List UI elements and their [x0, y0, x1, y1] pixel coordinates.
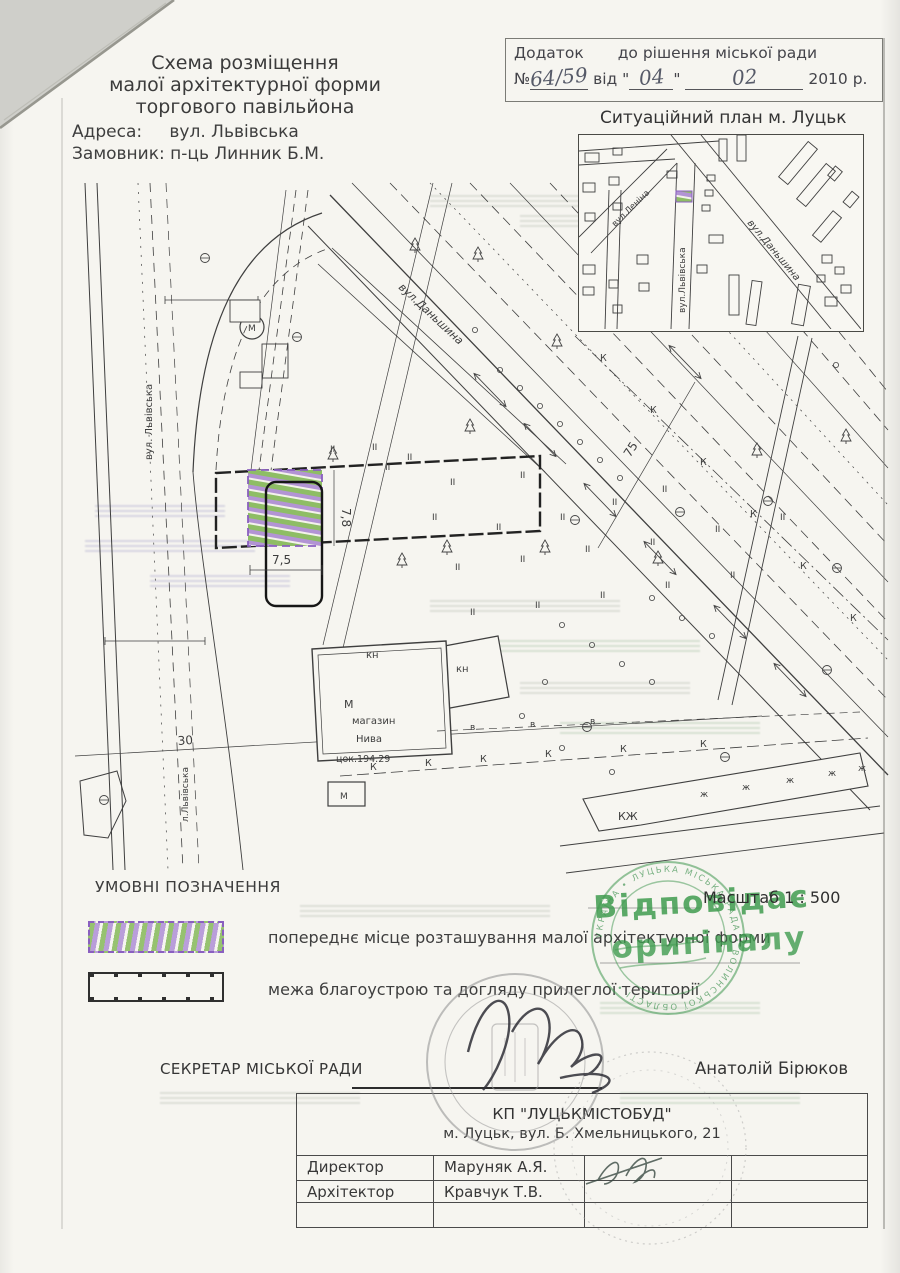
inset-building — [822, 255, 832, 263]
grass-symbol: II — [455, 563, 460, 573]
sewer-mark: К — [700, 739, 707, 750]
survey-dot — [472, 327, 477, 332]
manhole-symbol — [201, 254, 210, 263]
legend-item-1: попереднє місце розташування малої архіт… — [268, 928, 771, 947]
client-row: Замовник: п-ць Линник Б.М. — [72, 144, 324, 164]
annex-no-sign: № — [514, 70, 530, 88]
survey-dot — [619, 661, 624, 666]
kzh-mark: ж — [742, 783, 750, 793]
inset-building — [609, 280, 618, 288]
role-cell: Архітектор — [297, 1181, 434, 1202]
survey-dot — [649, 595, 654, 600]
grass-symbol: II — [432, 513, 437, 523]
inset-building — [697, 265, 707, 273]
grass-symbol: II — [535, 601, 540, 611]
manhole-symbol — [833, 564, 842, 573]
bldg-shop1: магазин — [352, 716, 395, 727]
legend-item-2: межа благоустрою та догляду прилеглої те… — [268, 980, 699, 999]
grass-symbol: II — [662, 485, 667, 495]
grass-symbol: II — [407, 453, 412, 463]
role-cell: Директор — [297, 1156, 434, 1180]
legend-swatch-pavilion — [88, 921, 224, 953]
survey-dot — [833, 362, 838, 367]
company-header: КП "ЛУЦЬКМІСТОБУД" м. Луцьк, вул. Б. Хме… — [297, 1094, 867, 1156]
bldg-m-circle: М — [248, 324, 256, 334]
scale-label: Масштаб 1 : 500 — [703, 888, 840, 907]
secretary-label: СЕКРЕТАР МІСЬКОЇ РАДИ — [160, 1060, 363, 1078]
document-title: Схема розміщення малої архітектурної фор… — [95, 52, 395, 118]
grass-symbol: II — [496, 523, 501, 533]
inset-building — [709, 235, 723, 243]
water-mark: в — [530, 720, 535, 730]
company-address: м. Луцьк, вул. Б. Хмельницького, 21 — [297, 1126, 867, 1142]
inset-building — [843, 191, 859, 208]
inset-map: вул.Даньшина вул.Львівська вул.Леніна — [578, 134, 864, 332]
tree-symbol — [410, 238, 420, 253]
survey-dot — [537, 403, 542, 408]
sewer-mark: К — [620, 744, 627, 755]
dim-30: 30 — [177, 733, 193, 748]
tree-symbol — [653, 551, 663, 566]
direction-arrow — [642, 539, 678, 576]
inset-building — [613, 148, 622, 155]
annex-word2: до рішення міської ради — [618, 44, 817, 62]
grass-symbol: II — [330, 445, 335, 455]
inset-building — [705, 190, 713, 196]
manhole-symbol — [676, 508, 685, 517]
inset-building — [792, 284, 811, 325]
manhole-symbol — [293, 333, 302, 342]
grass-symbol: II — [385, 463, 390, 473]
sewer-mark: К — [750, 509, 757, 520]
inset-building — [729, 275, 739, 315]
grass-symbol: II — [600, 591, 605, 601]
bldg-kn1: кн — [366, 650, 379, 661]
grass-symbol: II — [450, 478, 455, 488]
annex-day-handwritten: 04 — [638, 64, 665, 90]
name-cell: Маруняк А.Я. — [434, 1156, 585, 1180]
grass-symbol: II — [372, 443, 377, 453]
grass-symbol: II — [612, 498, 617, 508]
survey-dot — [519, 713, 524, 718]
survey-dot — [559, 745, 564, 750]
grass-symbol: II — [520, 555, 525, 565]
grass-symbol: II — [715, 525, 720, 535]
manhole-symbol — [571, 516, 580, 525]
survey-dot — [559, 622, 564, 627]
street-lvivska-label: вул. Львівська — [143, 384, 155, 460]
survey-dot — [589, 642, 594, 647]
annex-word1: Додаток — [514, 44, 584, 62]
kzh-mark: ж — [858, 764, 866, 774]
inset-building — [702, 205, 710, 211]
tree-symbol — [442, 540, 452, 555]
direction-arrow — [667, 343, 703, 380]
inset-building — [813, 211, 842, 243]
direction-arrow — [472, 371, 508, 408]
survey-dot — [557, 421, 562, 426]
inset-building — [835, 267, 844, 274]
inset-building — [779, 142, 818, 185]
inset-building — [639, 283, 649, 291]
sewer-mark: К — [850, 613, 857, 624]
bldg-kzh: КЖ — [618, 810, 638, 823]
tree-symbol — [540, 540, 550, 555]
survey-dot — [597, 457, 602, 462]
survey-dot — [679, 615, 684, 620]
address-label: Адреса: — [72, 122, 164, 142]
bldg-shop2: Нива — [356, 734, 382, 745]
manhole-symbol — [764, 497, 773, 506]
inset-building — [583, 183, 595, 192]
annex-number-handwritten: 64/59 — [529, 63, 589, 92]
survey-dot — [609, 769, 614, 774]
inset-building — [746, 281, 762, 326]
title-block-table: КП "ЛУЦЬКМІСТОБУД" м. Луцьк, вул. Б. Хме… — [296, 1093, 868, 1228]
sewer-mark: К — [800, 561, 807, 572]
client-value: п-ць Линник Б.М. — [170, 144, 324, 164]
tree-symbol — [465, 419, 475, 434]
manhole-symbol — [721, 753, 730, 762]
survey-dot — [517, 385, 522, 390]
dim-75w: 7,5 — [272, 553, 291, 567]
bldg-m-small: М — [340, 792, 348, 802]
bldg-kn2: кн — [456, 664, 469, 675]
dim-75: 75 — [621, 439, 641, 459]
dim-78: 7,8 — [339, 508, 353, 527]
inset-building — [583, 265, 595, 274]
inset-building — [585, 153, 599, 162]
annex-year: 2010 р. — [808, 70, 867, 88]
grass-symbol: II — [585, 545, 590, 555]
sewer-mark: К — [650, 405, 657, 416]
grass-symbol: II — [520, 471, 525, 481]
survey-dot — [649, 679, 654, 684]
address-value: вул. Львівська — [169, 122, 298, 142]
title-line-2: малої архітектурної форми — [95, 74, 395, 96]
grass-symbol: II — [650, 538, 655, 548]
table-row-architect: Архітектор Кравчук Т.В. — [297, 1181, 867, 1203]
inset-building — [841, 285, 851, 293]
tree-symbol — [752, 443, 762, 458]
grass-symbol: II — [780, 513, 785, 523]
direction-arrow — [772, 661, 808, 698]
sewer-mark: К — [700, 457, 707, 468]
sewer-mark: К — [480, 754, 487, 765]
sewer-mark: К — [600, 353, 607, 364]
annex-vid: від — [593, 70, 617, 88]
inset-building — [797, 164, 836, 207]
grass-symbol: II — [730, 571, 735, 581]
survey-dot — [542, 679, 547, 684]
company-name: КП "ЛУЦЬКМІСТОБУД" — [297, 1105, 867, 1123]
manhole-symbol — [823, 666, 832, 675]
table-row-empty — [297, 1203, 867, 1227]
inset-street-lvivska: вул.Львівська — [678, 247, 688, 313]
legend-title: УМОВНІ ПОЗНАЧЕННЯ — [95, 878, 281, 896]
inset-building — [585, 213, 595, 221]
client-label: Замовник: — [72, 144, 165, 164]
bldg-m: М — [344, 698, 354, 711]
inset-building — [828, 166, 843, 181]
signature-cell — [585, 1156, 732, 1180]
grass-symbol: II — [470, 608, 475, 618]
water-mark: в — [590, 717, 595, 727]
secretary-name: Анатолій Бірюков — [695, 1059, 848, 1078]
inset-street-danshyna: вул.Даньшина — [745, 218, 802, 283]
inset-street-lenina: вул.Леніна — [610, 188, 652, 229]
title-line-3: торгового павільйона — [95, 96, 395, 118]
inset-building — [609, 177, 619, 185]
kzh-mark: ж — [786, 776, 794, 786]
sewer-mark: К — [425, 758, 432, 769]
sewer-mark: К — [545, 749, 552, 760]
grass-symbol: II — [665, 581, 670, 591]
kzh-mark: ж — [700, 790, 708, 800]
manhole-symbol — [100, 796, 109, 805]
scanned-page: IIIIIIIIIIIIIIIIIIIIIIIIIIIIIIIIIIIIIIII… — [0, 0, 900, 1273]
kzh-mark: ж — [828, 769, 836, 779]
water-mark: в — [470, 723, 475, 733]
grass-symbol: II — [560, 513, 565, 523]
direction-arrow — [712, 603, 748, 640]
annex-box: Додаток до рішення міської ради №64/59 в… — [505, 38, 883, 102]
inset-building — [583, 287, 594, 295]
survey-dot — [577, 439, 582, 444]
legend-swatch-boundary — [88, 972, 224, 1002]
survey-dot — [709, 633, 714, 638]
bldg-tsok: цок.194.29 — [336, 754, 390, 765]
title-line-1: Схема розміщення — [95, 52, 395, 74]
tree-symbol — [473, 247, 483, 262]
inset-building — [737, 135, 746, 161]
street-lvivska-small-label: л.Львівська — [181, 767, 191, 822]
inset-map-title: Ситуаційний план м. Луцьк — [600, 108, 847, 128]
inset-building — [637, 255, 648, 264]
tree-symbol — [552, 334, 562, 349]
signature-line — [352, 1087, 602, 1089]
address-row: Адреса: вул. Львівська — [72, 122, 299, 142]
name-cell: Кравчук Т.В. — [434, 1181, 585, 1202]
tree-symbol — [841, 429, 851, 444]
table-row-director: Директор Маруняк А.Я. — [297, 1156, 867, 1181]
survey-dot — [617, 475, 622, 480]
tree-symbol — [397, 553, 407, 568]
annex-month-handwritten: 02 — [731, 64, 758, 90]
